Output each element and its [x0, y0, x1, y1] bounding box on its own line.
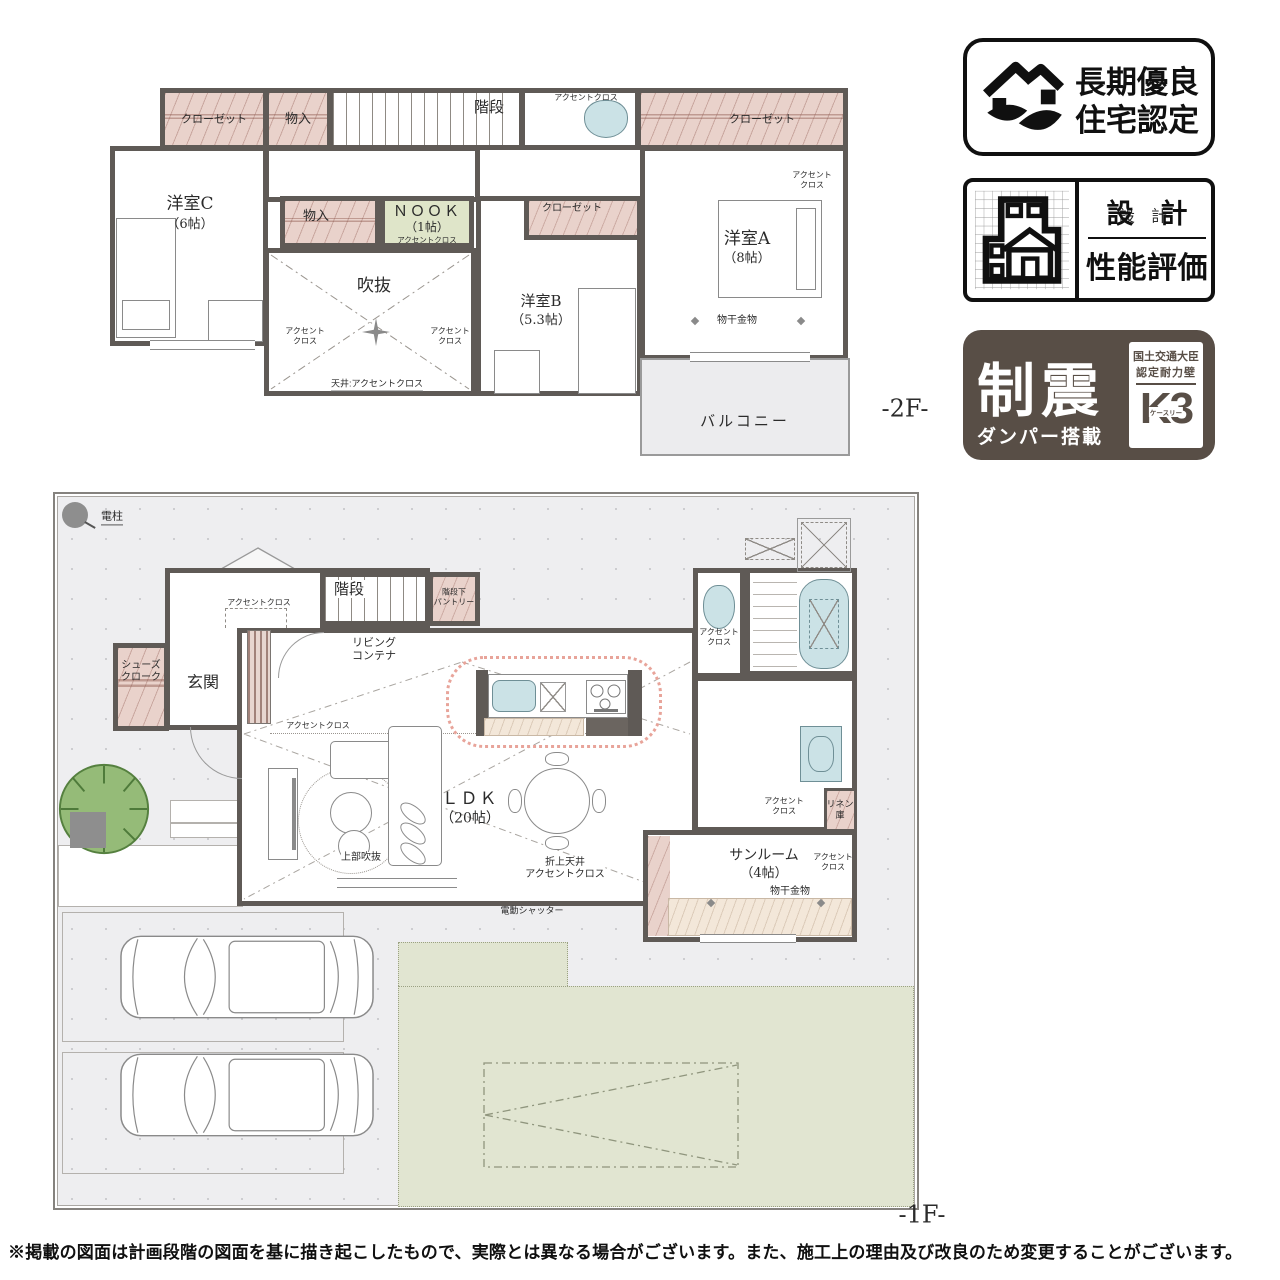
label-storage-mid-2f: 物入: [303, 209, 329, 225]
badge-seishin-sub: ダンパー搭載: [977, 422, 1103, 449]
bed-bedroom-b: [578, 288, 636, 394]
desk-bedroom-b: [494, 350, 540, 394]
car-1: [118, 928, 376, 1026]
label-ldk: ＬＤＫ: [442, 789, 499, 809]
label-nook: ＮＯＯＫ: [393, 202, 461, 220]
sekkei-divider: [1075, 182, 1079, 298]
label-ldk-size: （20帖）: [440, 811, 500, 828]
label-nook-size: （1帖）: [405, 220, 449, 234]
label-pole: 電柱: [101, 510, 123, 525]
badge-seishin: 制震 ダンパー搭載 国土交通大臣 認定耐力壁 K3 ケースリー: [963, 330, 1215, 460]
kitchen-lower-dark: [586, 718, 628, 736]
washer-area: [753, 577, 797, 667]
label-bedroom-c: 洋室C: [166, 194, 213, 214]
kitchen-lower-cabinet: [484, 718, 584, 736]
label-sunroom-accent: アクセント クロス: [813, 852, 853, 871]
kitchen-sink: [492, 680, 536, 712]
ac-unit-1: [745, 538, 795, 560]
label-entrance: 玄関: [187, 672, 219, 691]
label-shutter: 電動シャッター: [500, 906, 563, 917]
window-bedroom-c: [150, 340, 255, 350]
badge-choki-line2: 住宅認定: [1075, 102, 1199, 140]
label-bedroom-a-size: （8帖）: [723, 251, 770, 267]
void-ornament: [362, 318, 390, 346]
label-bedroom-b: 洋室B: [520, 292, 561, 310]
label-living-container: リビング コンテナ: [352, 637, 396, 663]
label-void: 吹抜: [357, 276, 391, 296]
garden-upper: [398, 942, 568, 988]
label-toilet-accent-1f: アクセント クロス: [699, 627, 739, 646]
label-void-ceiling: 天井:アクセントクロス: [331, 379, 423, 392]
sekkei-underline: [1088, 237, 1206, 239]
car-2: [118, 1046, 376, 1144]
shoes-closet: [113, 643, 169, 731]
label-closet-b: クローゼット: [542, 203, 602, 215]
label-nook-accent: アクセントクロス: [397, 236, 457, 245]
label-washroom-accent: アクセント クロス: [764, 796, 804, 815]
ldk-window: [337, 878, 457, 888]
badge-choki-line1: 長期優良: [1075, 64, 1199, 102]
storage-mid-2f: [280, 196, 380, 248]
dining-chair-top: [545, 752, 569, 766]
badge-sekkei-bottom: 性能評価: [1083, 243, 1211, 287]
label-void-accent-right: アクセント クロス: [430, 326, 470, 345]
toilet-fixture-2f: [584, 100, 628, 138]
badge-sekkei-title: 設 計: [1083, 192, 1211, 231]
k3-logo-sub: ケースリー: [1149, 407, 1183, 417]
dining-table: [524, 768, 590, 834]
kitchen-hatch-box: [540, 682, 566, 712]
kitchen-stove: [586, 680, 626, 714]
label-void-accent-left: アクセント クロス: [285, 326, 325, 345]
k3-line1: 国土交通大臣: [1129, 348, 1203, 364]
entrance-accent-zone: [225, 608, 287, 628]
pillow-bedroom-c: [122, 300, 170, 330]
label-sunroom-size: （4帖）: [740, 866, 787, 882]
label-toilet-accent-2f: アクセントクロス: [554, 93, 618, 103]
label-stairs-2f: 階段: [474, 98, 504, 116]
badge-choki: 長期優良 住宅認定: [963, 38, 1215, 156]
washbasin-bowl: [808, 736, 834, 772]
label-bedroom-c-size: （6帖）: [166, 217, 213, 233]
tv-panel: [292, 778, 296, 850]
sunroom-window: [700, 934, 796, 943]
ac-unit-2: [801, 522, 847, 568]
toilet-fixture-1f: [703, 585, 735, 629]
outdoor-storage: [70, 812, 106, 848]
label-sunroom: サンルーム: [729, 848, 799, 865]
garden-guide-lines: [483, 1062, 739, 1168]
label-ldk-accent: アクセントクロス: [286, 721, 350, 731]
ottoman-large: [330, 792, 372, 834]
floor-tag-2f: -2F-: [881, 395, 928, 424]
floor-tag-1f: -1F-: [898, 1201, 945, 1230]
bathtub-mark: [809, 599, 839, 649]
label-stairs-1f: 階段: [332, 580, 366, 598]
badge-seishin-big: 制震: [977, 344, 1105, 428]
label-sunroom-drying: 物干金物: [770, 886, 810, 898]
label-storage-top-2f: 物入: [285, 112, 311, 128]
pillow-bedroom-a: [796, 208, 816, 290]
window-bedroom-a: [690, 352, 810, 362]
sekkei-blueprint-icon: [975, 190, 1069, 290]
choki-house-leaf-icon: [981, 56, 1065, 140]
dining-chair-right: [592, 789, 606, 813]
label-shoes-closet: シューズ クローク: [121, 660, 161, 684]
label-bedroom-a: 洋室A: [724, 229, 770, 249]
floorplan-canvas: クローゼット 物入 階段 アクセントクロス クローゼット 洋室C （6帖） 物入…: [0, 0, 1280, 1280]
label-folded-ceiling: 折上天井 アクセントクロス: [525, 857, 605, 881]
utility-pole: [62, 502, 88, 528]
sunroom-accent-wall: [648, 836, 670, 936]
label-bedroom-a-accent: アクセント クロス: [792, 170, 832, 189]
badge-sekkei: 設 計 設 計 性能評価: [963, 178, 1215, 302]
label-balcony: バルコニー: [700, 412, 790, 430]
label-closet-left-2f: クローゼット: [181, 113, 247, 126]
desk-bedroom-c: [208, 300, 263, 342]
k3-line2: 認定耐力壁: [1129, 364, 1203, 380]
label-pantry: 階段下 パントリー: [434, 587, 474, 606]
balcony: [640, 358, 850, 456]
label-linen: リネン 庫: [826, 799, 853, 821]
hall-2f: [264, 146, 480, 202]
k3-certification-box: 国土交通大臣 認定耐力壁 K3 ケースリー: [1129, 342, 1203, 448]
porch-gable: [220, 547, 296, 570]
label-closet-right-2f: クローゼット: [729, 113, 795, 126]
label-hall-accent: アクセントクロス: [227, 598, 291, 608]
dining-chair-bottom: [545, 836, 569, 850]
label-drying-2f: 物干金物: [717, 315, 757, 327]
dining-chair-left: [508, 789, 522, 813]
disclaimer-text: ※掲載の図面は計画段階の図面を基に描き起こしたもので、実際とは異なる場合がござい…: [8, 1238, 1276, 1263]
label-upper-void: 上部吹抜: [341, 852, 381, 864]
label-bedroom-b-size: （5.3帖）: [511, 313, 571, 329]
kitchen-wall-right: [628, 670, 642, 736]
